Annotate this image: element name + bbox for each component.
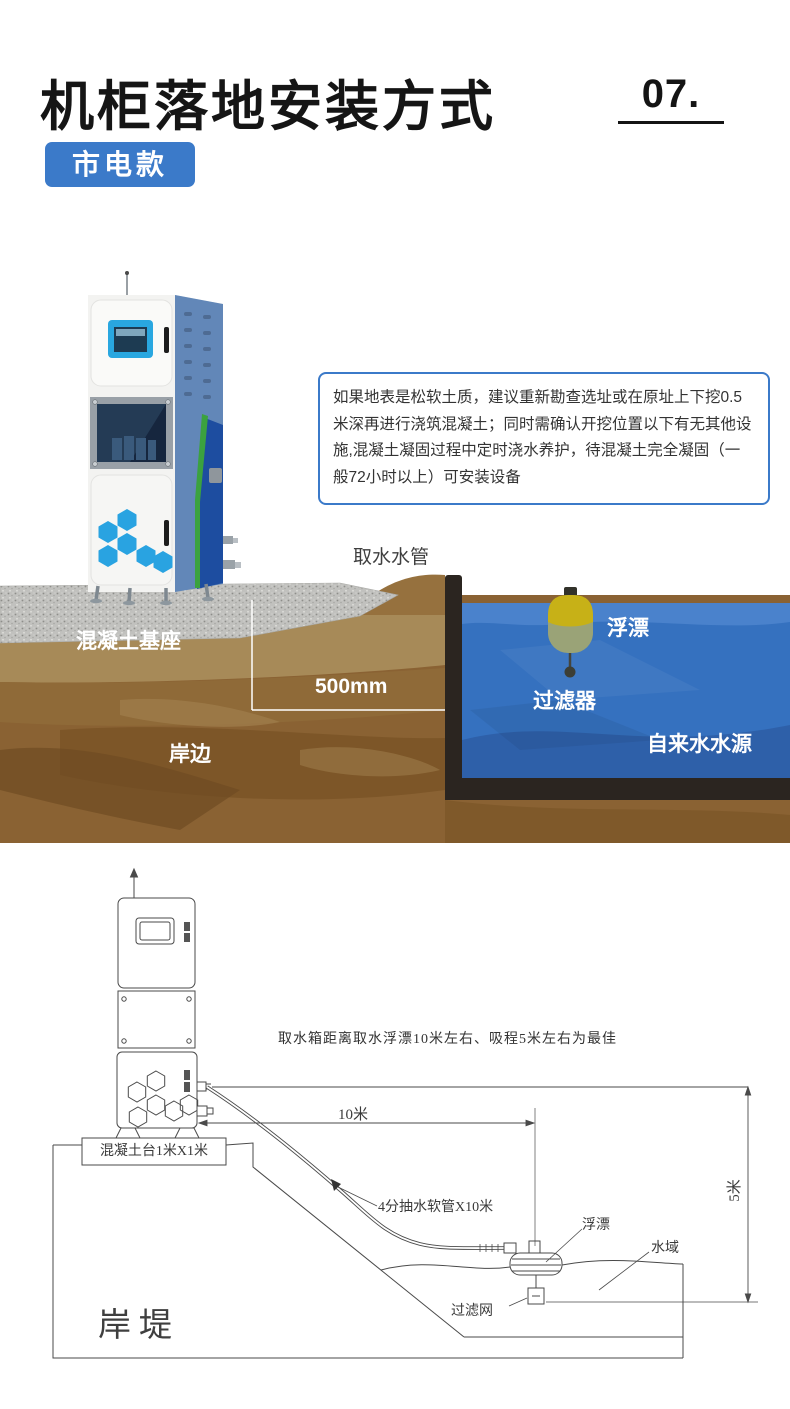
label-filter-mesh: 过滤网 [451,1300,493,1320]
water-tank [445,575,790,800]
dimension-5m [212,1087,758,1302]
monitoring-cabinet [88,271,241,605]
label-shore: 岸边 [169,738,211,768]
installation-scene: 如果地表是松软土质，建议重新勘查选址或在原址上下挖0.5米深再进行浇筑混凝土；同… [0,270,790,845]
installation-note: 如果地表是松软土质，建议重新勘查选址或在原址上下挖0.5米深再进行浇筑混凝土；同… [318,372,770,505]
label-water-area: 水域 [651,1237,679,1257]
label-embankment: 岸堤 [98,1298,180,1346]
technical-diagram: 取水箱距离取水浮漂10米左右、吸程5米左右为最佳 10米 混凝土台1米X1米 4… [0,860,790,1400]
label-concrete-base: 混凝土基座 [76,625,181,655]
page-number: 07. [618,72,724,124]
label-hose: 4分抽水软管X10米 [378,1196,493,1216]
dimension-10m [199,1108,535,1246]
label-5m: 5米 [723,1179,744,1202]
label-float: 浮漂 [607,612,649,642]
label-intake-pipe: 取水水管 [353,542,429,569]
label-depth-dimension: 500mm [315,675,387,699]
diagram-note: 取水箱距离取水浮漂10米左右、吸程5米左右为最佳 [278,1028,617,1048]
label-10m: 10米 [338,1103,368,1124]
door-handle [164,520,169,546]
label-diagram-float: 浮漂 [582,1214,610,1234]
label-filter: 过滤器 [533,685,596,715]
pipe-connector [223,536,233,544]
label-water-source: 自来水水源 [647,728,752,758]
page-title: 机柜落地安装方式 [40,62,496,141]
variant-badge: 市电款 [45,142,195,187]
page: 机柜落地安装方式 07. 市电款 [0,0,790,1409]
float-outline [510,1241,562,1304]
door-handle [164,327,169,353]
label-platform: 混凝土台1米X1米 [82,1138,226,1165]
cabinet-outline [110,869,213,1138]
pipe-connector [223,560,235,569]
